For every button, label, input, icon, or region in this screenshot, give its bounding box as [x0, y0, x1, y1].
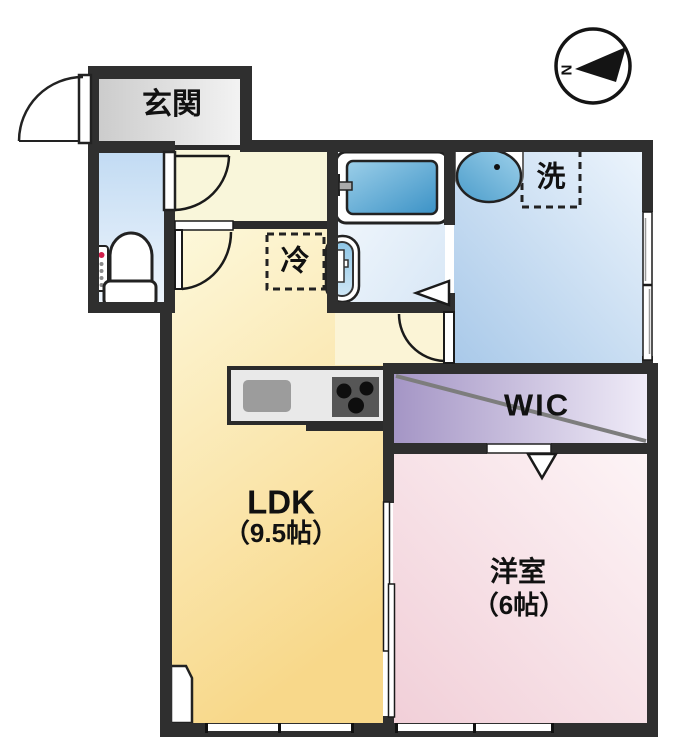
floor-plan-drawing	[0, 0, 674, 752]
hall-ldk-partition	[233, 221, 335, 229]
ldk-label: LDK	[247, 486, 315, 519]
wic-label: WIC	[504, 390, 570, 421]
western-room-floor	[393, 453, 648, 724]
genkan-label: 玄関	[142, 90, 202, 120]
corridor-nook-floor	[335, 308, 447, 365]
washer-label: 洗	[536, 164, 565, 193]
entrance-door-icon	[19, 75, 91, 143]
compass-north-label: N	[559, 65, 574, 76]
sliding-door-panel	[389, 584, 395, 717]
wic-door-opening	[487, 444, 551, 453]
western-room-size-label: （6帖）	[473, 592, 565, 618]
pipe-space-icon	[171, 666, 192, 723]
kitchen-sink-icon	[243, 380, 291, 412]
washbasin-icon	[455, 150, 523, 202]
western-room-label: 洋室	[490, 558, 546, 586]
kitchen-counter-icon	[229, 368, 390, 431]
floor-plan: 玄関 冷 洗 WIC LDK （9.5帖） 洋室 （6帖） N	[0, 0, 674, 752]
bathtub-icon	[329, 152, 448, 223]
refrigerator-label: 冷	[280, 248, 309, 277]
ldk-size-label: （9.5帖）	[224, 520, 338, 546]
